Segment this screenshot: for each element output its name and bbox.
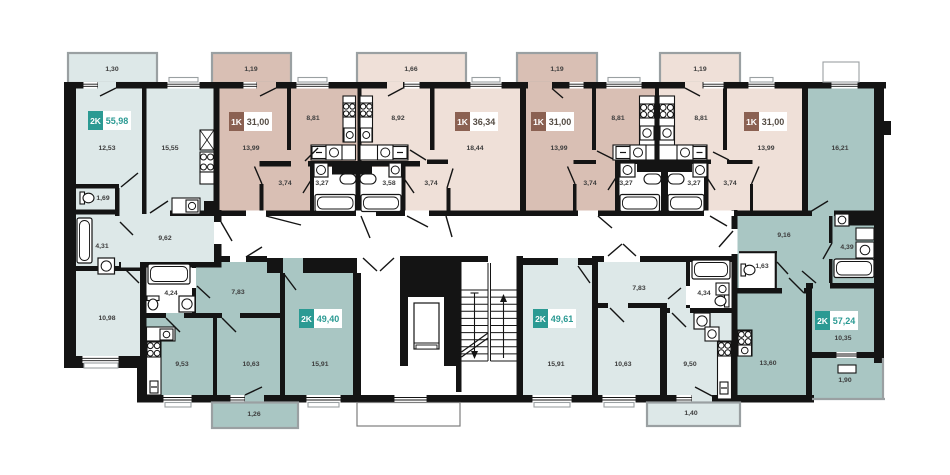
svg-text:1K: 1K [746,117,758,127]
svg-text:12,53: 12,53 [98,145,115,152]
svg-text:1,19: 1,19 [550,66,563,73]
svg-text:9,62: 9,62 [158,235,171,242]
svg-text:1,40: 1,40 [684,410,697,417]
svg-text:8,81: 8,81 [611,115,624,122]
svg-text:1,30: 1,30 [105,66,118,73]
svg-text:8,81: 8,81 [694,115,707,122]
svg-text:15,91: 15,91 [547,361,564,368]
svg-text:3,27: 3,27 [687,180,700,187]
svg-text:1,90: 1,90 [838,377,851,384]
svg-text:2K: 2K [817,316,829,326]
svg-text:4,31: 4,31 [95,243,108,250]
svg-text:49,40: 49,40 [317,314,340,324]
svg-text:1,66: 1,66 [404,66,417,73]
svg-text:13,99: 13,99 [550,145,567,152]
svg-text:1,26: 1,26 [247,411,260,418]
svg-text:2K: 2K [535,314,547,324]
svg-text:9,16: 9,16 [777,232,790,239]
svg-text:36,34: 36,34 [473,117,496,127]
svg-text:31,00: 31,00 [247,117,270,127]
svg-text:2K: 2K [90,116,102,126]
svg-text:3,58: 3,58 [382,180,395,187]
svg-text:7,83: 7,83 [632,285,645,292]
svg-text:31,00: 31,00 [549,117,572,127]
svg-text:55,98: 55,98 [106,116,129,126]
svg-text:9,53: 9,53 [175,361,188,368]
svg-text:10,63: 10,63 [614,361,631,368]
svg-text:15,91: 15,91 [311,361,328,368]
svg-text:13,60: 13,60 [759,360,776,367]
svg-text:1K: 1K [231,117,243,127]
svg-text:1,19: 1,19 [693,66,706,73]
svg-text:3,27: 3,27 [619,180,632,187]
svg-text:8,92: 8,92 [391,115,404,122]
svg-text:31,00: 31,00 [762,117,785,127]
svg-text:7,83: 7,83 [231,289,244,296]
svg-text:1,19: 1,19 [244,66,257,73]
svg-text:3,74: 3,74 [723,180,736,187]
svg-text:3,27: 3,27 [315,180,328,187]
svg-text:4,24: 4,24 [164,290,177,297]
svg-text:9,50: 9,50 [683,361,696,368]
svg-text:16,21: 16,21 [831,145,848,152]
svg-text:10,35: 10,35 [834,335,851,342]
svg-text:57,24: 57,24 [833,316,856,326]
svg-text:3,74: 3,74 [424,180,437,187]
svg-text:49,61: 49,61 [551,314,574,324]
svg-text:2K: 2K [301,314,313,324]
svg-text:15,55: 15,55 [161,145,178,152]
svg-text:3,74: 3,74 [278,180,291,187]
svg-text:3,74: 3,74 [583,180,596,187]
svg-text:18,44: 18,44 [466,145,483,152]
svg-text:10,63: 10,63 [242,361,259,368]
svg-text:1,69: 1,69 [96,195,109,202]
svg-text:13,99: 13,99 [242,145,259,152]
svg-text:4,34: 4,34 [697,290,710,297]
svg-text:1K: 1K [457,117,469,127]
svg-text:1K: 1K [533,117,545,127]
svg-text:1,63: 1,63 [755,263,768,270]
svg-text:10,98: 10,98 [98,315,115,322]
svg-text:13,99: 13,99 [757,145,774,152]
svg-text:8,81: 8,81 [306,115,319,122]
svg-text:4,39: 4,39 [840,244,853,251]
